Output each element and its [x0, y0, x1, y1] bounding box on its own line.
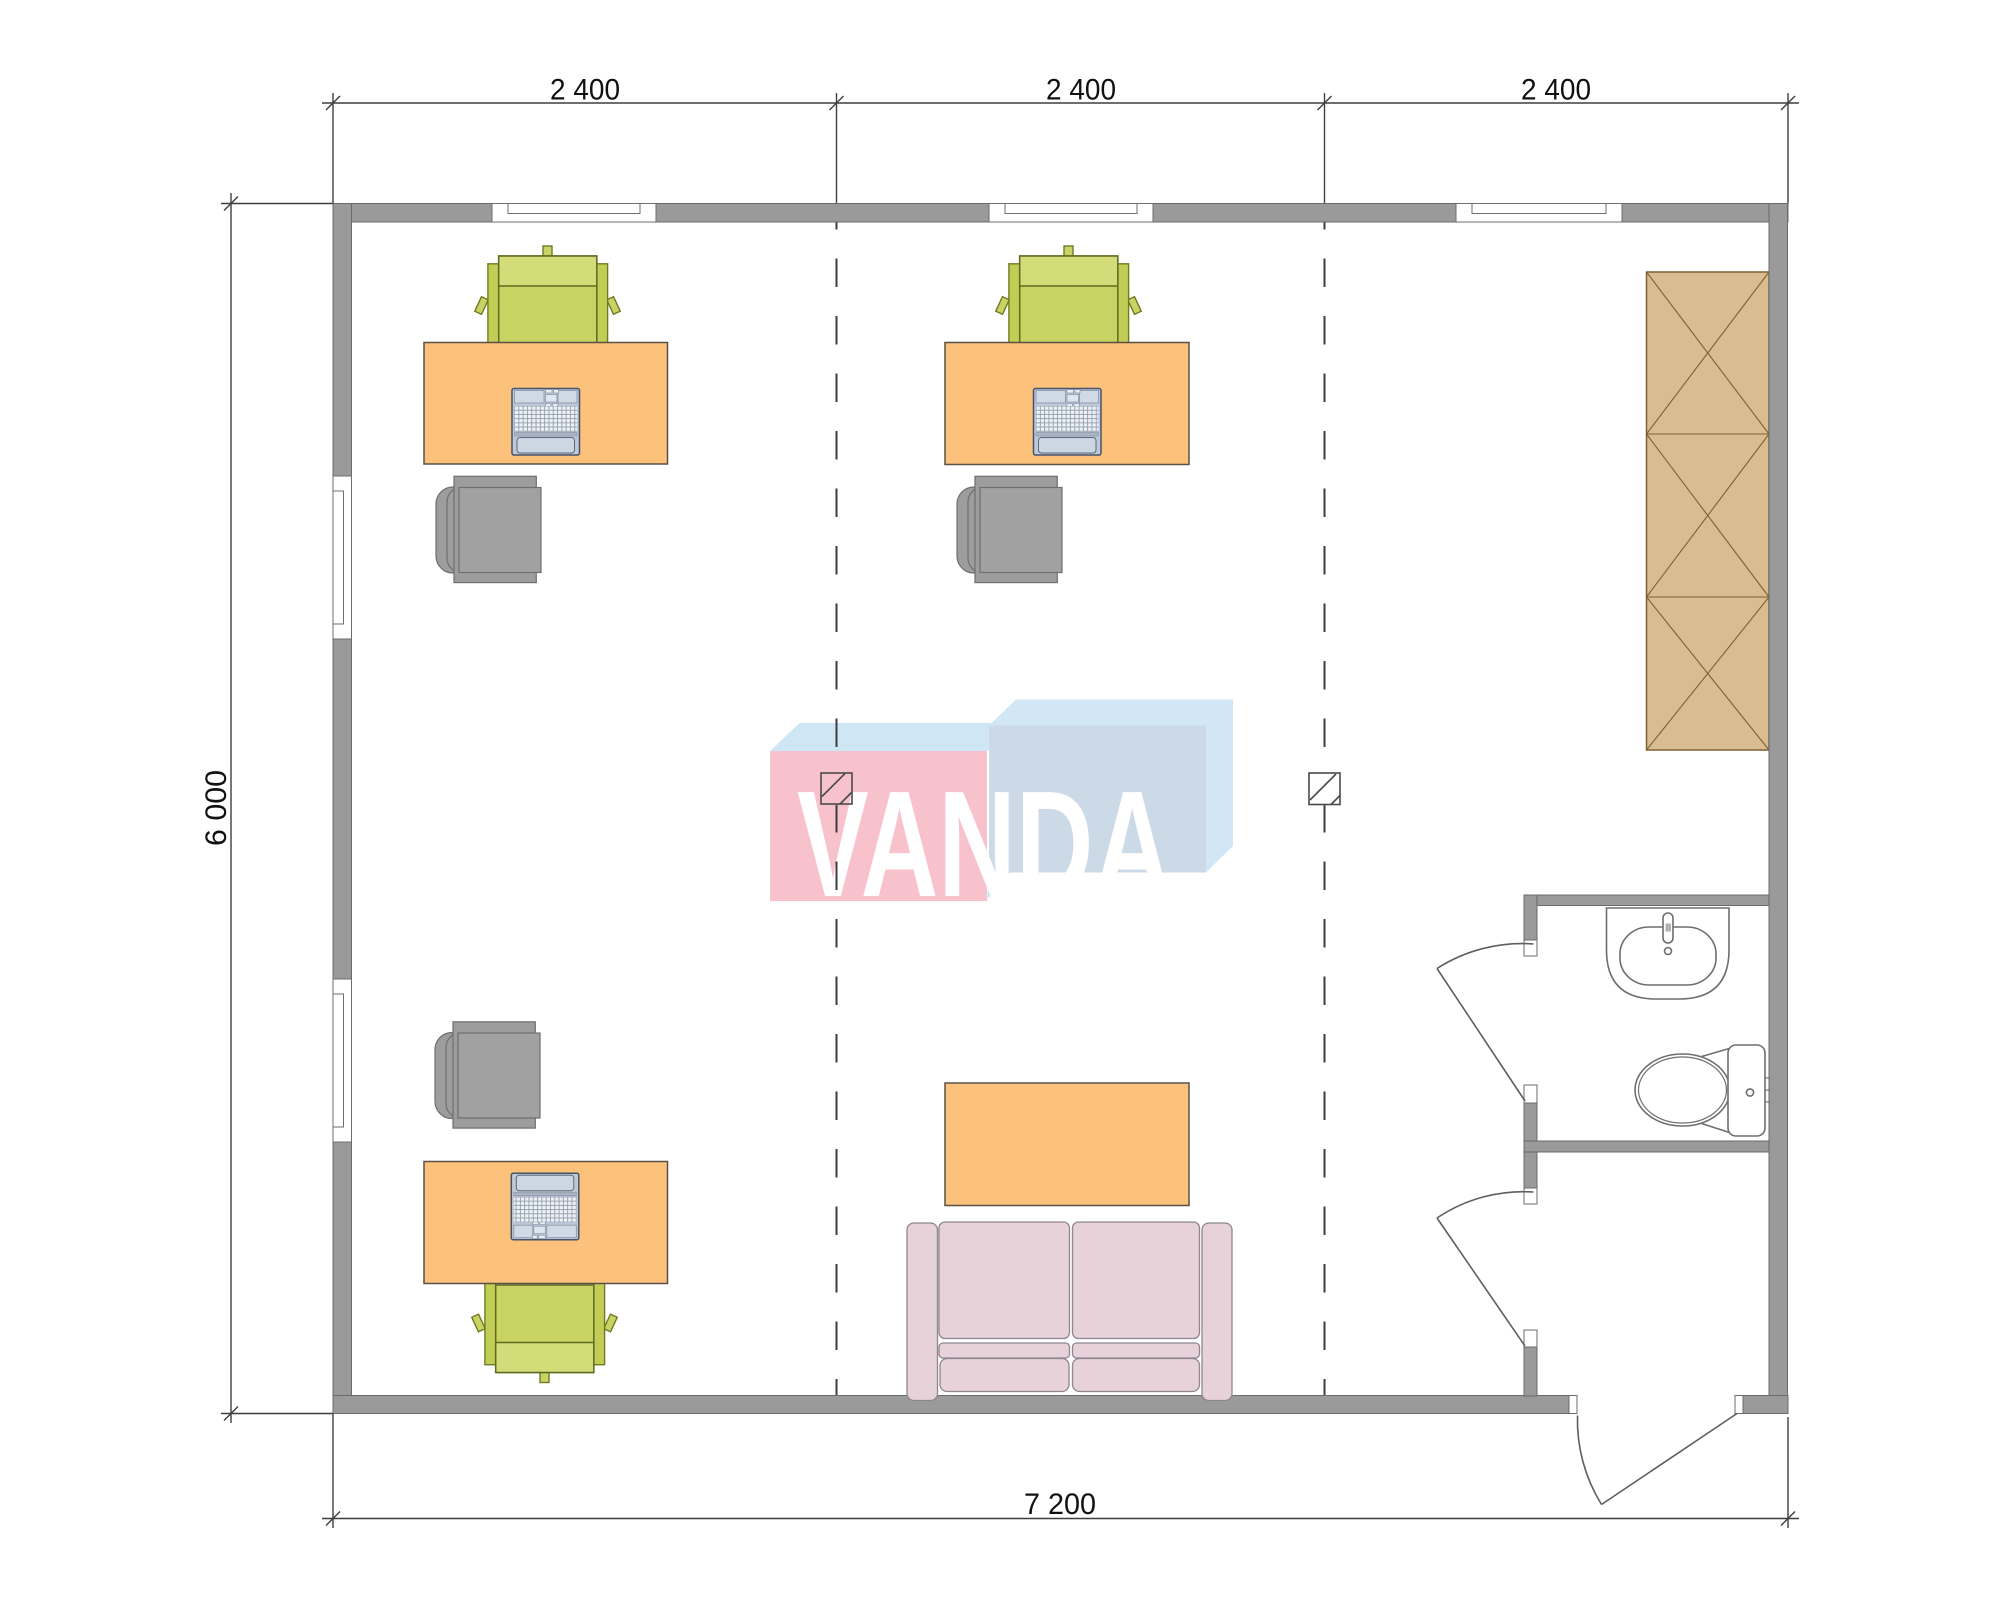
svg-text:2 400: 2 400: [550, 74, 620, 107]
svg-text:2 400: 2 400: [1046, 74, 1116, 107]
svg-text:2 400: 2 400: [1521, 74, 1591, 107]
svg-text:7 200: 7 200: [1024, 1488, 1096, 1521]
svg-text:6 000: 6 000: [200, 770, 233, 846]
svg-text:VANDA: VANDA: [797, 759, 1171, 928]
